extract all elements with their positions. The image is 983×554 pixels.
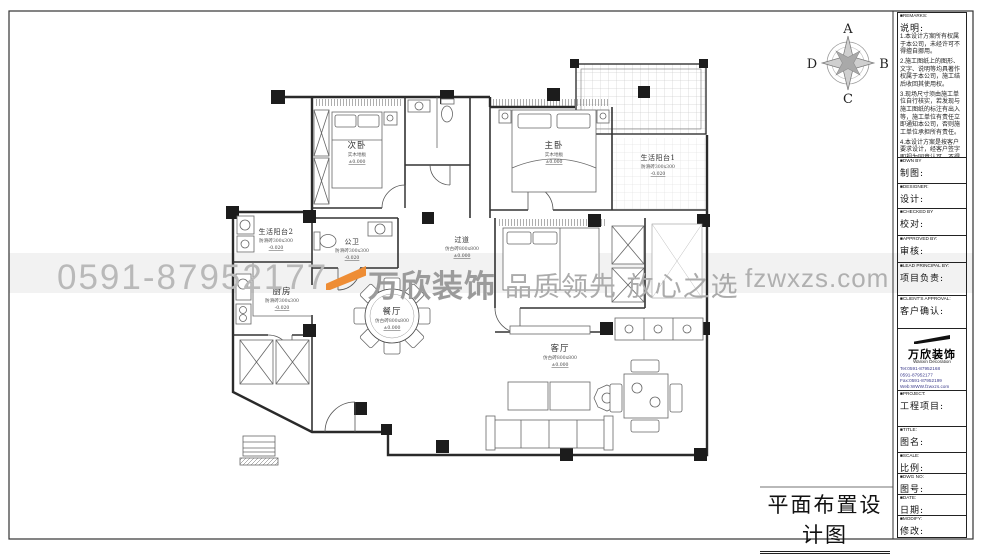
titleblock-checked-by: ■CHECKED BY校对: [898, 209, 966, 236]
svg-text:生活阳台1: 生活阳台1 [641, 153, 676, 162]
titleblock-project: ■PROJECT:工程项目: [898, 391, 966, 427]
titleblock-remarks: ■REMARKS: 说明: 1.本设计方案所有权属于本公司，未经许可不得擅自挪用… [898, 13, 966, 158]
sheet-frame [9, 11, 973, 539]
titleblock-approved-by: ■APPROVED BY:审核: [898, 236, 966, 263]
compass-b: B [879, 57, 889, 72]
svg-text:防滑砖300x300: 防滑砖300x300 [265, 297, 299, 304]
room-label-gongwei: 公卫 防滑砖300x300 -0.020 [335, 238, 369, 261]
svg-text:±0.000: ±0.000 [545, 159, 562, 165]
titleblock-title: ■TITLE:图名: [898, 427, 966, 453]
bed-mid [503, 226, 644, 302]
titleblock-company: 万欣装饰 Wanxin Decoration Tel:0591-87952168… [898, 329, 966, 391]
svg-text:±0.000: ±0.000 [551, 362, 568, 368]
compass-a: A [842, 22, 853, 37]
company-contact: Tel:0591-87952168 0591-87952177 Fax:0591… [900, 367, 950, 390]
svg-text:餐厅: 餐厅 [382, 307, 401, 317]
drawing-title: 平面布置设计图 [760, 489, 890, 554]
titleblock-principal: ■LEAD PRINCIPAL BY:项目负责: [898, 263, 966, 296]
svg-text:-0.020: -0.020 [345, 255, 360, 261]
compass-d: D [807, 57, 817, 72]
svg-text:仿古砖800x800: 仿古砖800x800 [543, 354, 577, 361]
svg-text:防滑砖300x300: 防滑砖300x300 [259, 237, 293, 244]
room-label-guodao: 过道 仿古砖800x800 ±0.000 [445, 235, 479, 259]
svg-text:±0.000: ±0.000 [453, 253, 470, 259]
room-label-keting: 客厅 仿古砖800x800 ±0.000 [543, 343, 577, 368]
svg-text:主卧: 主卧 [544, 140, 563, 151]
svg-text:仿古砖800x800: 仿古砖800x800 [445, 245, 479, 252]
svg-text:-0.020: -0.020 [275, 305, 290, 311]
company-name-en: Wanxin Decoration [908, 360, 956, 365]
company-logo-swoosh-icon [914, 335, 950, 344]
svg-text:生活阳台2: 生活阳台2 [259, 227, 294, 236]
room-label-yangtai2: 生活阳台2 防滑砖300x300 -0.020 [259, 227, 294, 251]
titleblock-scale: ■SCALE:比例: [898, 453, 966, 474]
titleblock-dwg-no: ■DWG NO:图号: [898, 474, 966, 495]
room-label-chufang: 厨房 防滑砖300x300 -0.020 [265, 286, 299, 311]
svg-text:防滑砖300x300: 防滑砖300x300 [335, 247, 369, 254]
titleblock-modify: ■MODIFY:修改: [898, 516, 966, 537]
storage-boxes [240, 340, 309, 384]
svg-text:±0.000: ±0.000 [348, 159, 365, 165]
entry-steps [240, 436, 278, 465]
svg-text:-0.020: -0.020 [651, 171, 666, 177]
svg-text:厨房: 厨房 [272, 286, 291, 297]
titleblock-client-approval: ■CLIENT'S APPROVAL:客户确认: [898, 296, 966, 329]
svg-text:次卧: 次卧 [347, 140, 366, 151]
company-name-zh: 万欣装饰 [900, 349, 964, 360]
svg-text:公卫: 公卫 [345, 238, 360, 246]
svg-text:过道: 过道 [455, 235, 470, 244]
svg-text:客厅: 客厅 [550, 343, 569, 354]
svg-text:实木地板: 实木地板 [545, 151, 564, 158]
svg-text:防滑砖300x300: 防滑砖300x300 [641, 163, 675, 170]
title-block: ■REMARKS: 说明: 1.本设计方案所有权属于本公司，未经许可不得擅自挪用… [897, 12, 967, 538]
titleblock-date: ■DATE:日期: [898, 495, 966, 516]
balcony2-appliances [237, 216, 254, 252]
compass-rose: A B C D [807, 22, 889, 107]
svg-text:±0.000: ±0.000 [383, 325, 400, 331]
compass-c: C [843, 92, 853, 107]
svg-text:仿古砖800x800: 仿古砖800x800 [375, 317, 409, 324]
titleblock-drawn-by: ■DWN BY制图: [898, 158, 966, 184]
room-label-zhuwo: 主卧 实木地板 ±0.000 [544, 140, 563, 165]
svg-text:-0.020: -0.020 [269, 245, 284, 251]
room-label-ciwo: 次卧 实木地板 ±0.000 [347, 140, 366, 165]
svg-text:实木地板: 实木地板 [348, 151, 367, 158]
drawing-sheet: 次卧 实木地板 ±0.000 主卧 实木地板 ±0.000 生活阳台1 防滑砖3… [0, 0, 983, 549]
bath-master [408, 97, 454, 148]
titleblock-designer: ■DESIGNER:设计: [898, 184, 966, 209]
floor-plan: 次卧 实木地板 ±0.000 主卧 实木地板 ±0.000 生活阳台1 防滑砖3… [0, 0, 983, 549]
bed-zhuwo [499, 110, 609, 192]
